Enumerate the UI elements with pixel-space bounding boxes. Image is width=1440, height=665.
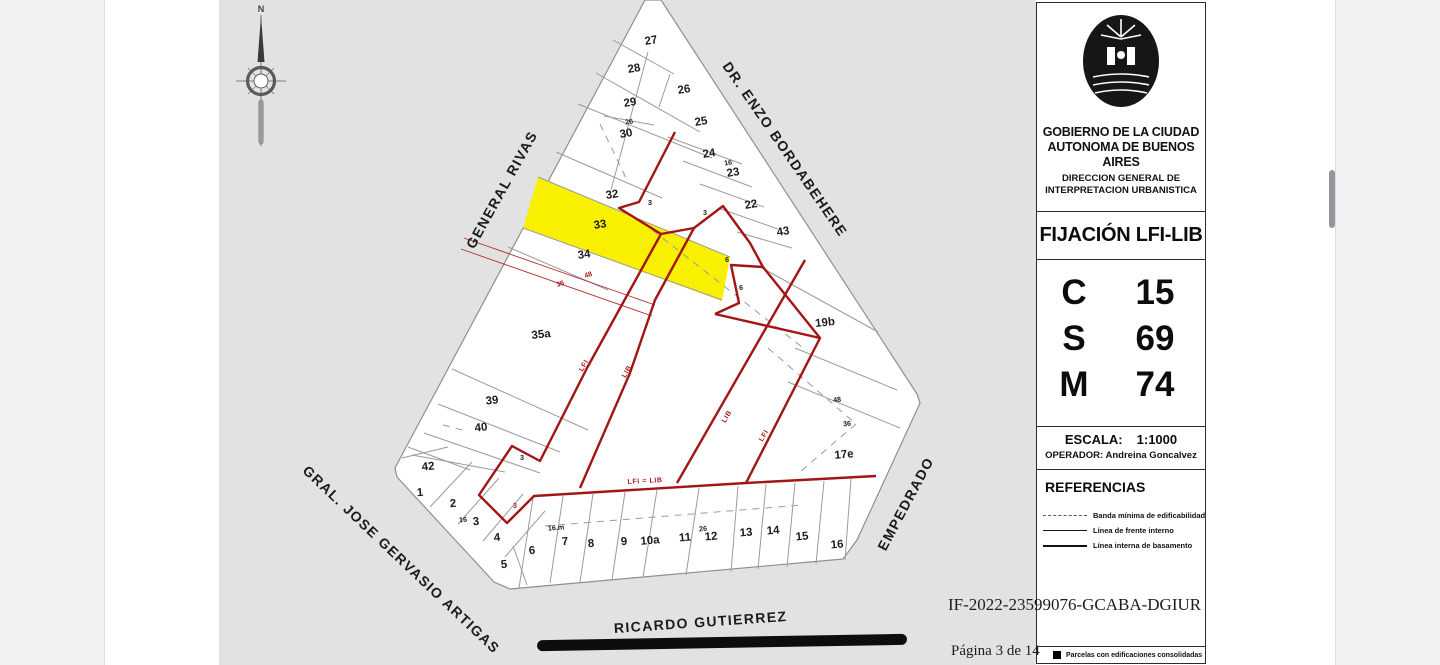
dim-48-right: 48 — [833, 395, 842, 405]
lot-label-43: 43 — [776, 225, 791, 239]
dim-3-b: 3 — [703, 208, 707, 217]
lot-label-6: 6 — [528, 545, 535, 558]
footer-legend-label: Parcelas con edificaciones consolidadas — [1066, 652, 1202, 659]
lot-label-23: 23 — [726, 166, 741, 180]
operator-value: Andreina Goncalvez — [1106, 450, 1197, 461]
org-name-line2: AUTONOMA DE BUENOS AIRES — [1037, 140, 1205, 170]
dim-26-bottom: 26 — [699, 524, 708, 534]
legend-label: Banda mínima de edificabilidad — [1093, 511, 1205, 520]
scale-section: ESCALA:1:1000 OPERADOR: Andreina Goncalv… — [1037, 427, 1205, 470]
legend-item-basamento: Línea interna de basamento — [1043, 541, 1205, 550]
lot-label-30: 30 — [619, 127, 634, 141]
lot-label-19b: 19b — [815, 316, 836, 330]
legend-label: Línea interna de basamento — [1093, 541, 1192, 550]
document-title: FIJACIÓN LFI-LIB — [1040, 224, 1203, 247]
csm-section: C 15 S 69 M 74 — [1037, 260, 1205, 427]
lot-label-33: 33 — [593, 218, 607, 232]
lot-label-16: 16 — [830, 538, 844, 551]
csm-value-s: 69 — [1125, 319, 1185, 359]
lot-label-39: 39 — [485, 394, 499, 407]
csm-row-s: S 69 — [1037, 316, 1205, 362]
dim-26-top: 26 — [624, 116, 633, 126]
lot-label-27: 27 — [644, 34, 659, 48]
org-dept-line1: DIRECCION GENERAL DE — [1037, 173, 1205, 185]
lot-label-10a: 10a — [640, 534, 661, 548]
scrollbar-thumb[interactable] — [1329, 170, 1335, 228]
lot-label-7: 7 — [561, 536, 568, 549]
csm-value-m: 74 — [1125, 365, 1185, 405]
lot-label-2: 2 — [449, 498, 456, 511]
consolidated-parcel-swatch — [1053, 651, 1061, 659]
gcaba-seal-logo — [1077, 11, 1165, 111]
csm-row-m: M 74 — [1037, 362, 1205, 408]
compass-n-label: N — [258, 4, 265, 14]
lot-label-11: 11 — [679, 531, 693, 544]
csm-value-c: 15 — [1125, 273, 1185, 313]
footer-legend-section: Parcelas con edificaciones consolidadas — [1037, 647, 1205, 663]
legend-item-frente-interno: Línea de frente interno — [1043, 526, 1205, 535]
lot-label-42: 42 — [421, 460, 435, 473]
legend-item-banda-minima: Banda mínima de edificabilidad — [1043, 511, 1205, 520]
thick-line-sample — [1043, 545, 1087, 547]
org-name-line1: GOBIERNO DE LA CIUDAD — [1037, 125, 1205, 140]
dim-16-left: 16 — [459, 515, 468, 525]
org-dept-line2: INTERPRETACION URBANISTICA — [1037, 185, 1205, 197]
csm-row-c: C 15 — [1037, 270, 1205, 316]
dim-16-top: 16 — [723, 157, 732, 167]
csm-key-c: C — [1057, 273, 1091, 313]
lot-label-22: 22 — [744, 198, 759, 212]
dim-6-b: 6 — [739, 283, 743, 292]
title-block-panel: GOBIERNO DE LA CIUDAD AUTONOMA DE BUENOS… — [1036, 2, 1206, 664]
lot-label-32: 32 — [605, 188, 619, 202]
lot-label-17e: 17e — [834, 448, 854, 462]
lot-label-15: 15 — [795, 530, 809, 543]
lot-label-13: 13 — [739, 526, 753, 539]
compass-south-needle — [259, 100, 263, 144]
legend-label: Línea de frente interno — [1093, 526, 1174, 535]
lot-label-40: 40 — [474, 421, 488, 434]
scale-value: 1:1000 — [1137, 432, 1177, 447]
lot-label-34: 34 — [577, 248, 592, 262]
cadastral-map: N GENERAL RIVAS DR. ENZO BORDABEHERE EMP… — [219, 0, 1036, 665]
lot-label-9: 9 — [620, 536, 627, 549]
document-id-stamp: IF-2022-23599076-GCABA-DGIUR — [948, 595, 1201, 615]
csm-key-s: S — [1057, 319, 1091, 359]
lot-label-35a: 35a — [531, 328, 552, 342]
dim-16m: 16.m — [548, 522, 565, 532]
dim-3-a: 3 — [648, 198, 652, 207]
dashed-line-sample — [1043, 515, 1087, 516]
dim-36-right: 36 — [843, 419, 852, 429]
red-dim-3: 3 — [513, 503, 517, 510]
dim-3-c: 3 — [520, 453, 524, 462]
document-title-section: FIJACIÓN LFI-LIB — [1037, 212, 1205, 260]
lot-label-3: 3 — [472, 516, 479, 529]
thin-line-sample — [1043, 530, 1087, 531]
references-title: REFERENCIAS — [1045, 479, 1205, 495]
scale-label: ESCALA: — [1065, 432, 1123, 447]
header-section: GOBIERNO DE LA CIUDAD AUTONOMA DE BUENOS… — [1037, 3, 1205, 212]
references-section: REFERENCIAS Banda mínima de edificabilid… — [1037, 470, 1205, 647]
operator-label: OPERADOR: — [1045, 450, 1103, 461]
lot-label-29: 29 — [623, 96, 638, 110]
lot-label-14: 14 — [766, 524, 780, 537]
dim-6-a: 6 — [725, 255, 729, 264]
csm-key-m: M — [1057, 365, 1091, 405]
document-viewer: N GENERAL RIVAS DR. ENZO BORDABEHERE EMP… — [0, 0, 1440, 665]
lot-label-26: 26 — [677, 83, 692, 97]
page-indicator: Página 3 de 14 — [951, 643, 1040, 660]
